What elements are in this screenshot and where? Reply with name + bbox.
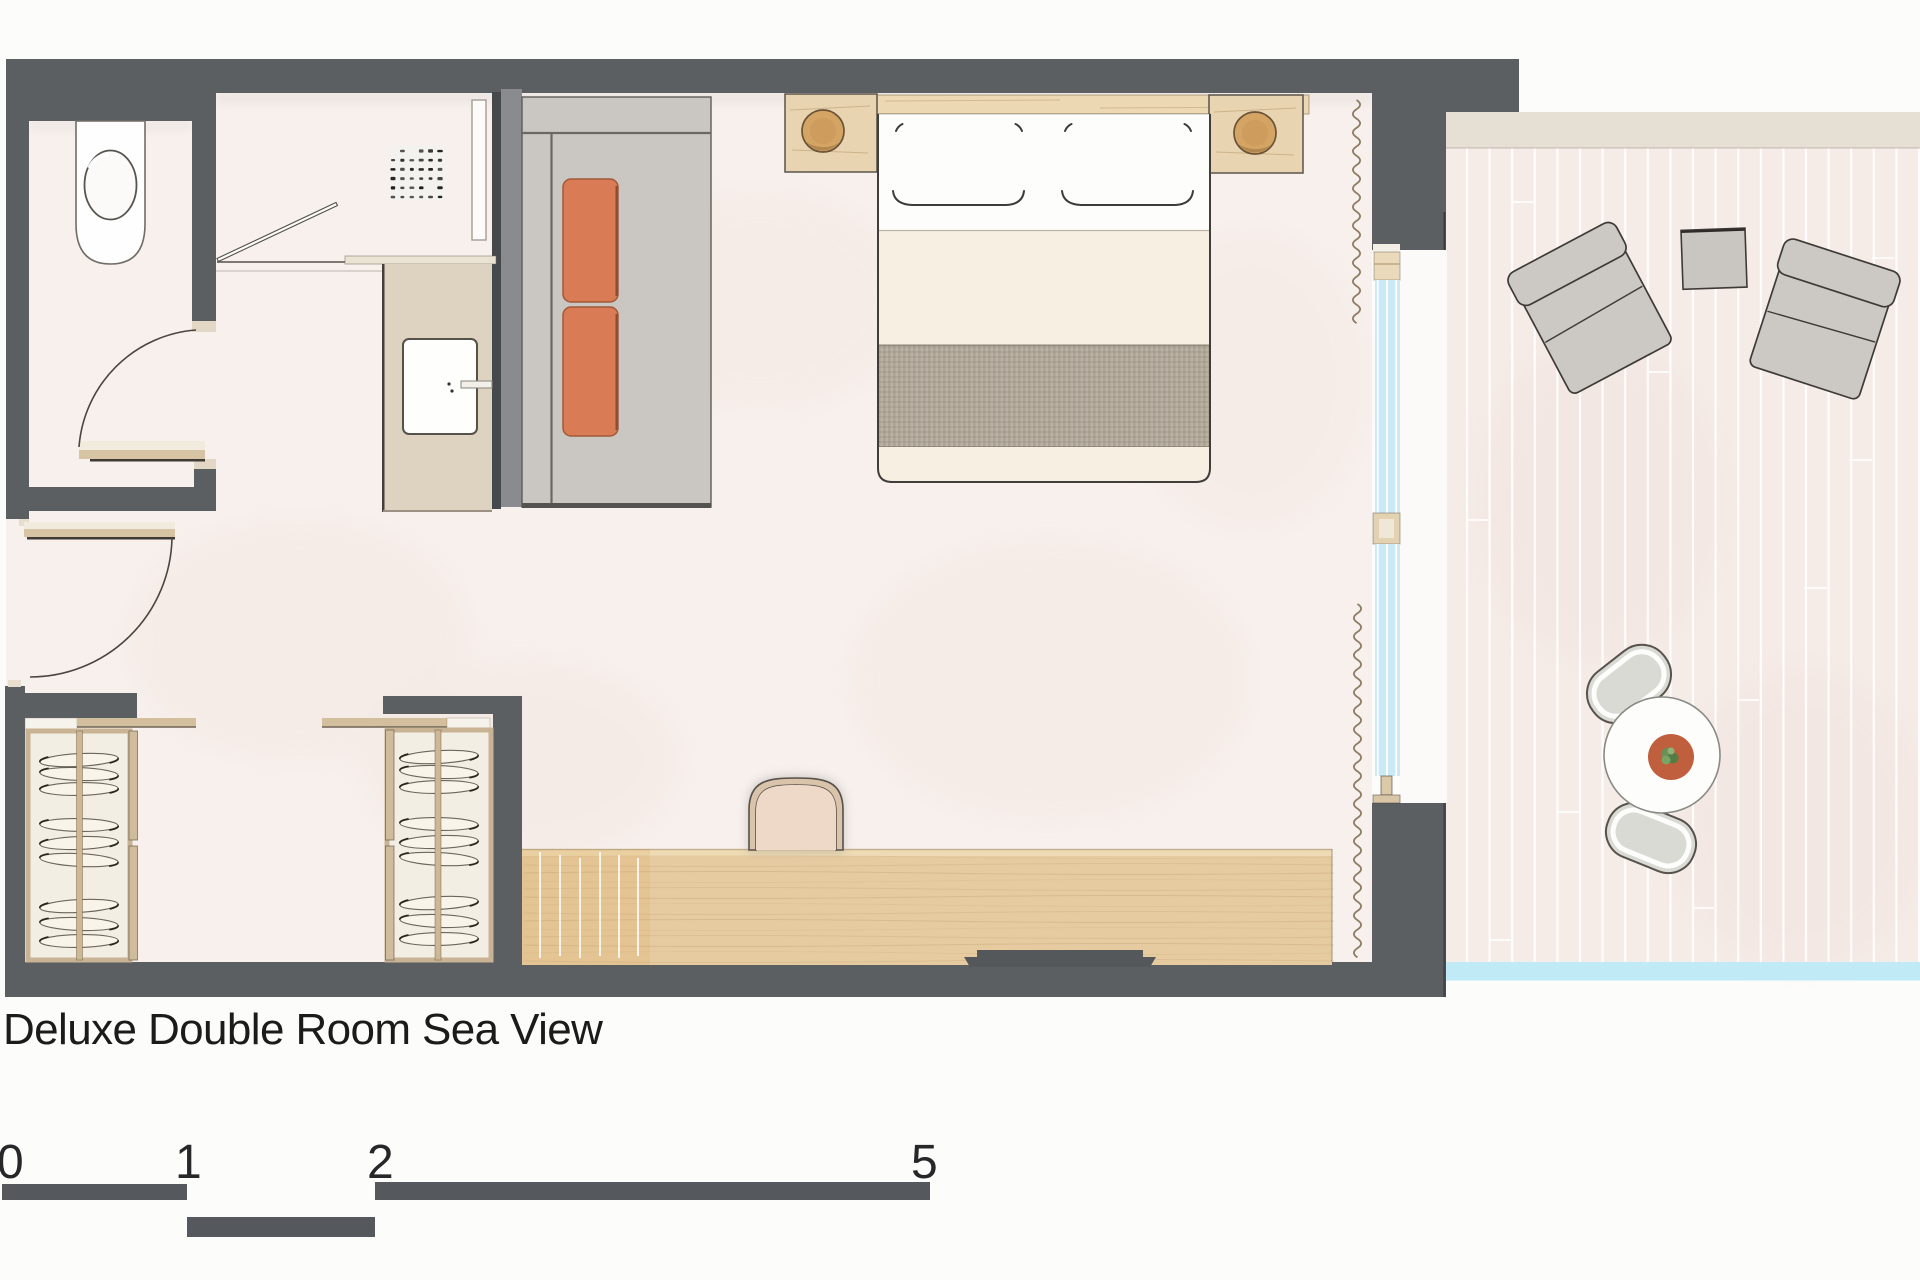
svg-text:5: 5 bbox=[911, 1136, 938, 1189]
svg-text:2: 2 bbox=[367, 1136, 394, 1189]
svg-text:Deluxe Double Room Sea View: Deluxe Double Room Sea View bbox=[3, 1005, 603, 1054]
svg-text:1: 1 bbox=[175, 1136, 202, 1189]
svg-text:0: 0 bbox=[0, 1136, 24, 1189]
